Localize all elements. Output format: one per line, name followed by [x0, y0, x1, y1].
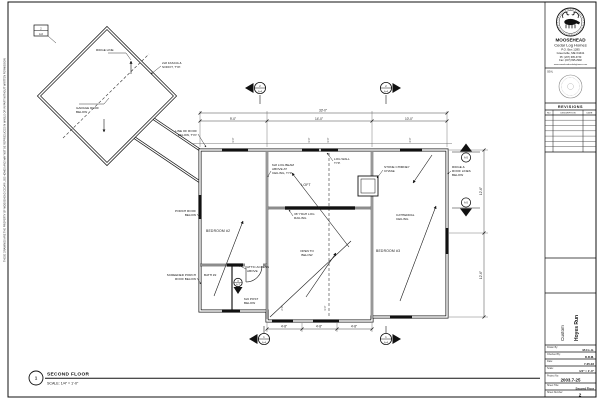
company-fax: Fax: (207) 695-2992 [559, 59, 582, 62]
svg-text:Checked By:: Checked By: [547, 353, 561, 356]
svg-text:4'-8": 4'-8" [351, 325, 357, 329]
svg-text:1/4" = 1'-0": 1/4" = 1'-0" [579, 369, 595, 373]
project-type: Custom [560, 325, 565, 341]
company-tagline: Cedar Log Homes [554, 42, 586, 47]
svg-text:12'-6": 12'-6" [479, 187, 483, 195]
svg-text:BELOW: BELOW [244, 301, 255, 305]
svg-text:3'-0": 3'-0" [231, 137, 235, 142]
svg-text:ROOF BELOW: ROOF BELOW [175, 277, 196, 281]
title-block-fields: Drawn By: M.C.L.H. Checked By: D.R.M. Da… [545, 346, 596, 397]
svg-text:A-7: A-7 [236, 284, 241, 287]
svg-text:Second Floor: Second Floor [576, 386, 595, 390]
section-marker-top-right: 2 A-4 [380, 82, 401, 104]
project-name: Hoyes Run [574, 315, 580, 341]
svg-text:RAILING: RAILING [294, 216, 307, 220]
moose-icon [563, 12, 580, 28]
project-name-box: Custom Hoyes Run [560, 315, 580, 341]
chimney-chase [358, 176, 378, 196]
svg-text:A-4: A-4 [384, 91, 389, 94]
section-marker-bottom-left: 1 A-4 [249, 326, 270, 345]
section-marker-bottom-right: 1 A-4 [380, 326, 401, 345]
revisions-col-date: DATE [587, 112, 593, 115]
svg-text:A-5: A-5 [464, 202, 469, 205]
garage-roof-plan: RIDGE LINE GARAGE ROOF BELOW [39, 28, 175, 164]
note-garage-roof-2: BELOW [76, 110, 87, 114]
company-logo: MOOSEHEAD Cedar Log Homes P.O. Box 1285 … [554, 8, 588, 66]
svg-text:M.C.L.H.: M.C.L.H. [582, 348, 594, 352]
svg-text:7-25-03: 7-25-03 [584, 362, 594, 366]
revisions-col-desc: DESCRIPTION [561, 113, 576, 115]
svg-text:TYP.: TYP. [334, 161, 341, 165]
svg-text:Sheet Title:: Sheet Title: [547, 384, 559, 387]
svg-text:CHASE: CHASE [384, 169, 395, 173]
title-block: MOOSEHEAD Cedar Log Homes P.O. Box 1285 … [545, 2, 596, 397]
svg-text:10'-0": 10'-0" [405, 117, 413, 121]
svg-text:BELOW: BELOW [452, 173, 463, 177]
elevation-marker-lower: A-5 [452, 198, 480, 217]
company-web: www.mooseheadcedarloghomes.com [554, 64, 588, 66]
drawing-title-scale: SCALE: 1/4" = 1'-0" [47, 382, 79, 386]
seal-label: SEAL [547, 71, 554, 74]
svg-text:4'-0": 4'-0" [408, 137, 412, 142]
svg-text:A-4: A-4 [384, 342, 389, 345]
svg-text:4'-8": 4'-8" [316, 325, 322, 329]
revisions-col-no: NO. [547, 113, 551, 115]
room-label-left: BEDROOM #2 [206, 229, 230, 233]
keynote-tag: 2 A-6 [34, 25, 56, 43]
svg-text:12'-6": 12'-6" [479, 271, 483, 279]
note-ridge-line: RIDGE LINE [96, 48, 114, 52]
copyright-note: THESE DRAWINGS ARE THE PROPERTY OF MOOSE… [4, 58, 7, 262]
svg-text:A-4: A-4 [262, 342, 267, 345]
svg-text:2'-8": 2'-8" [280, 305, 284, 310]
svg-text:2: 2 [579, 392, 582, 397]
section-marker-top-left: 2 A-4 [245, 82, 266, 104]
revisions-title: REVISIONS [558, 105, 583, 109]
seal-box: SEAL [547, 71, 582, 99]
revisions-table: REVISIONS NO. DESCRIPTION DATE [545, 105, 596, 152]
room-label-loft: LOFT [301, 183, 310, 187]
svg-text:BELOW, TYP.: BELOW, TYP. [178, 133, 197, 137]
svg-text:3'-0": 3'-0" [323, 305, 327, 310]
svg-text:BELOW: BELOW [185, 213, 196, 217]
svg-text:Project No:: Project No: [547, 374, 559, 377]
svg-text:BATH #2: BATH #2 [204, 273, 217, 277]
svg-text:4'-8": 4'-8" [281, 325, 287, 329]
svg-text:9'-0": 9'-0" [230, 117, 236, 121]
svg-text:Drawn By:: Drawn By: [547, 346, 558, 349]
svg-text:Scale:: Scale: [547, 367, 554, 370]
svg-text:D.R.M.: D.R.M. [585, 355, 594, 359]
drawing-title-name: SECOND FLOOR [47, 372, 89, 378]
svg-text:CEILING: CEILING [396, 217, 409, 221]
svg-text:BELOW: BELOW [301, 253, 312, 257]
eave-note: 2x8 FASCIA & SOFFIT, TYP. [151, 61, 183, 74]
keynote-sheet: A-6 [39, 33, 44, 36]
house-exterior-walls [200, 150, 447, 321]
sheet-svg: THESE DRAWINGS ARE THE PROPERTY OF MOOSE… [0, 0, 600, 400]
svg-text:2003.7-25: 2003.7-25 [561, 378, 581, 383]
drawing-title-number: 1 [35, 376, 38, 381]
svg-text:A-4: A-4 [258, 91, 263, 94]
drawing-sheet: THESE DRAWINGS ARE THE PROPERTY OF MOOSE… [0, 0, 600, 400]
room-label-right: BEDROOM #3 [376, 249, 400, 253]
svg-text:SOFFIT, TYP.: SOFFIT, TYP. [162, 65, 181, 69]
svg-text:3'-0": 3'-0" [326, 137, 330, 142]
svg-text:33'-0": 33'-0" [319, 109, 327, 113]
elevation-marker-upper: A-5 [452, 144, 480, 163]
svg-text:ABOVE: ABOVE [247, 269, 258, 273]
svg-text:14'-0": 14'-0" [315, 117, 323, 121]
svg-text:CEILING, TYP.: CEILING, TYP. [272, 171, 293, 175]
svg-text:Date:: Date: [547, 360, 553, 363]
svg-text:3'-0": 3'-0" [307, 137, 311, 142]
drawing-title: 1 SECOND FLOOR SCALE: 1/4" = 1'-0" [29, 371, 540, 386]
company-address2: Greenville, ME 04441 [557, 51, 585, 55]
svg-text:Sheet Number:: Sheet Number: [547, 391, 563, 394]
svg-text:A-5: A-5 [464, 157, 469, 160]
